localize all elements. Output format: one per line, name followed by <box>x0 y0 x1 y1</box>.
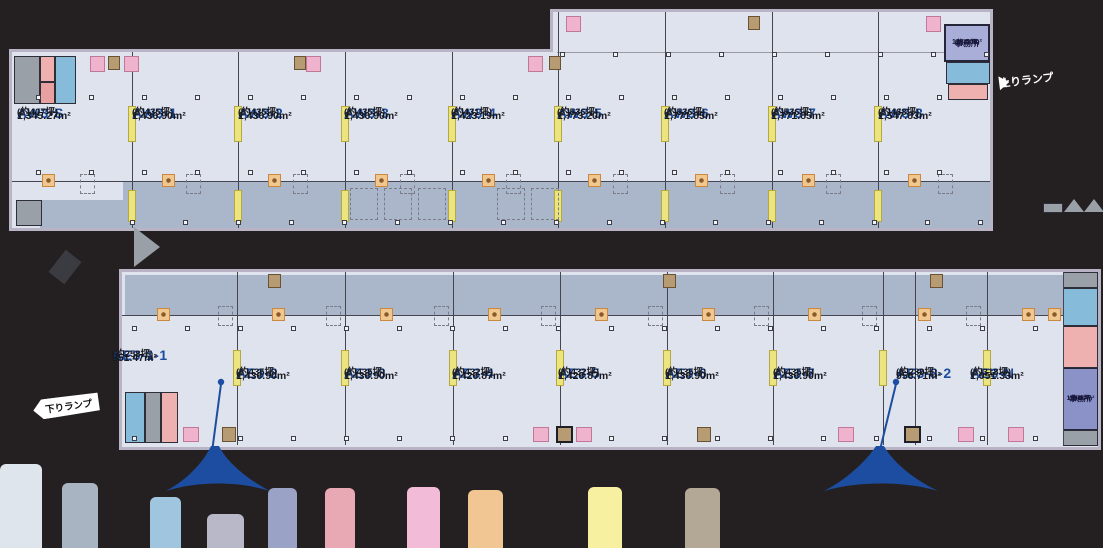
unit-area-tsubo: (約468坪) <box>878 108 919 118</box>
unit-area-tsubo: (約536坪) <box>771 108 812 118</box>
unit-area-tsubo: (約289坪) <box>896 368 937 378</box>
floorplan-canvas: 事務所 126.50m² (約38坪) 事務所 159.67m² (約48坪) … <box>0 0 1103 548</box>
unit-area-tsubo: (約431坪) <box>451 108 492 118</box>
unit-area-tsubo: (約536坪) <box>557 108 598 118</box>
unit-area-tsubo: (約435坪) <box>665 368 706 378</box>
unit-area-tsubo: (約432坪) <box>452 368 493 378</box>
unit-area-tsubo: (約435坪) <box>132 108 173 118</box>
unit-area-tsubo: (約435坪) <box>773 368 814 378</box>
unit-area-tsubo: (約407坪) <box>17 108 58 118</box>
unit-area-tsubo: (約536坪) <box>664 108 705 118</box>
unit-area-tsubo: (約435坪) <box>344 108 385 118</box>
units-layer: AW3-S1,345.27m²(約407坪)AW3-11,436.90m²(約4… <box>0 0 1103 548</box>
unit-area-tsubo: (約435坪) <box>238 108 279 118</box>
unit-area-tsubo: (約435坪) <box>344 368 385 378</box>
unit-area-tsubo: (約258坪) <box>112 350 153 360</box>
unit-area-tsubo: (約432坪) <box>558 368 599 378</box>
unit-area-tsubo: (約435坪) <box>236 368 277 378</box>
unit-area-tsubo: (約318坪) <box>970 368 1011 378</box>
